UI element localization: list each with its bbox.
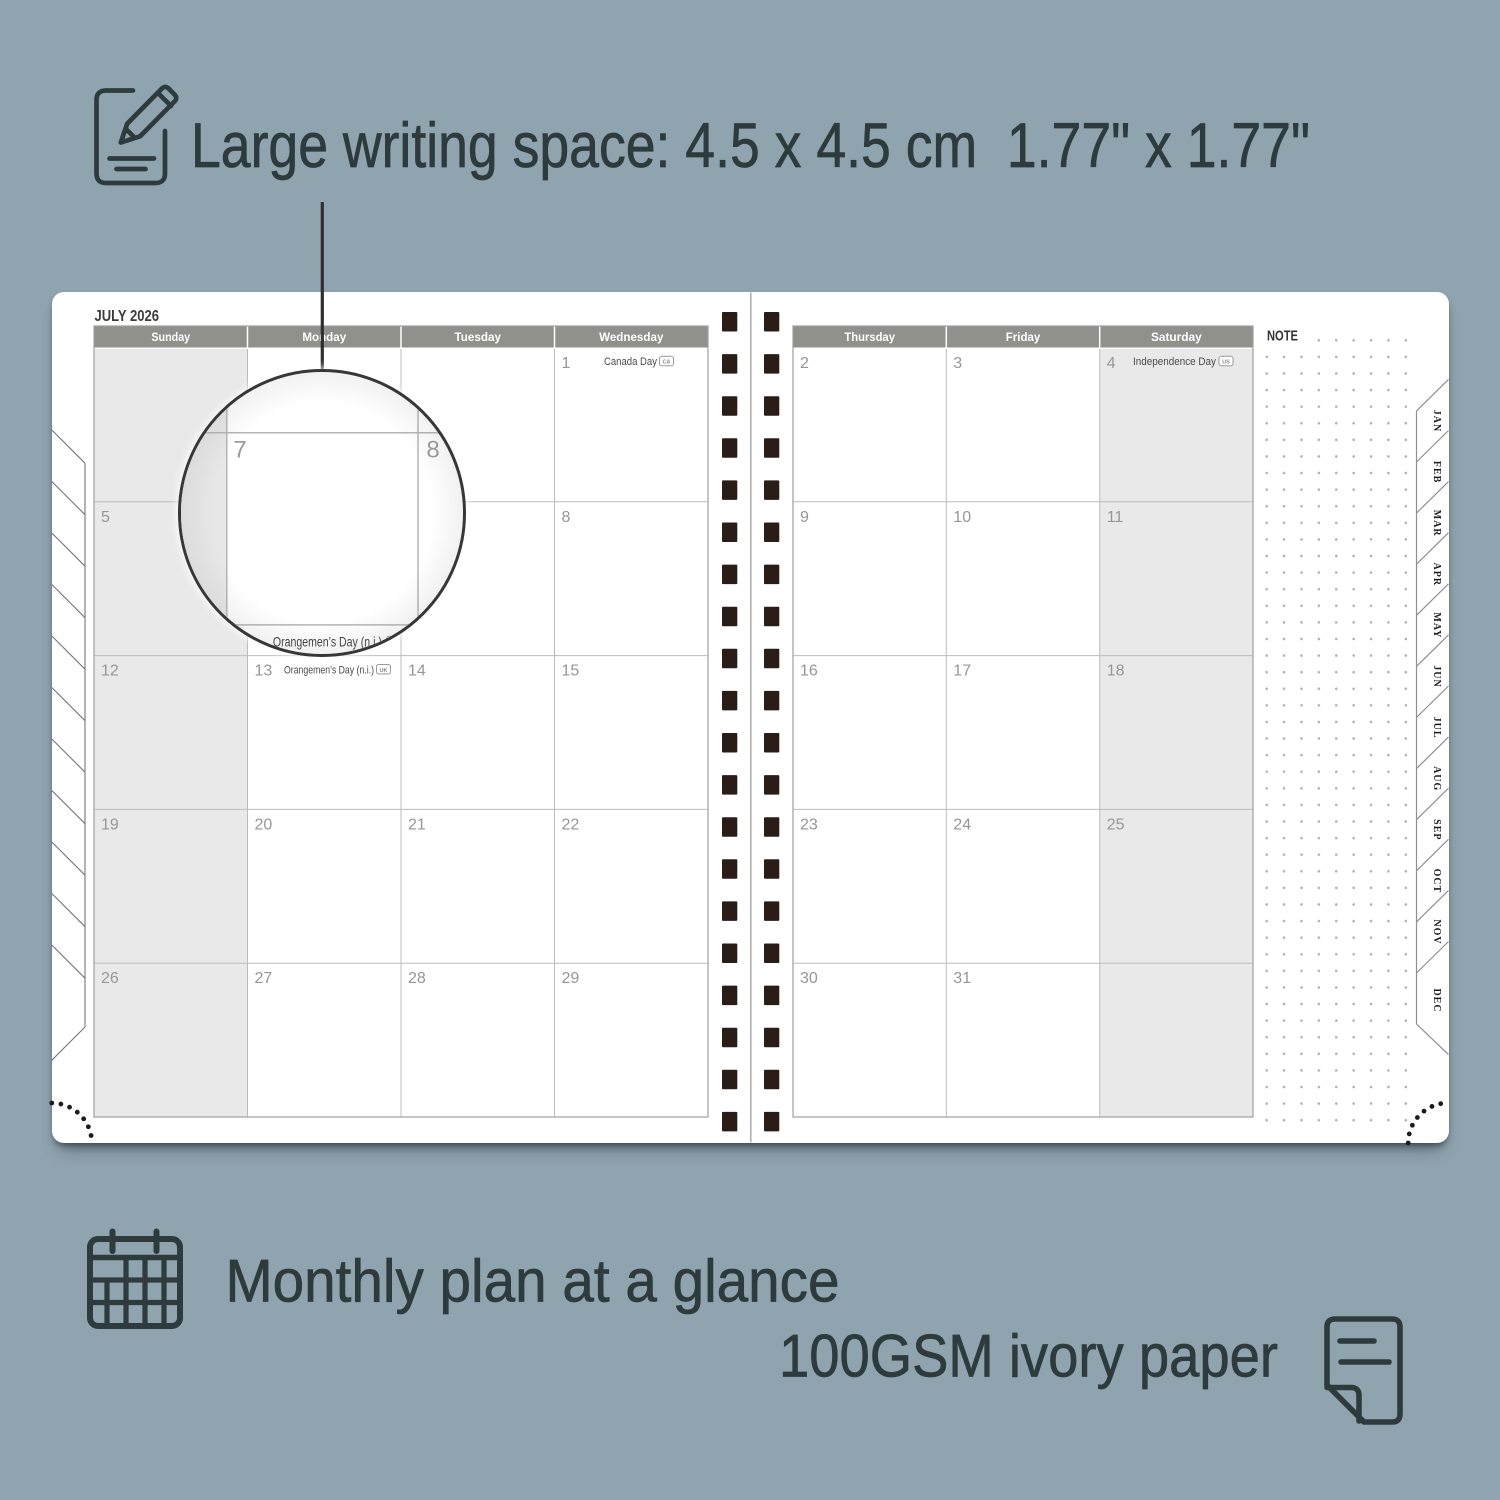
svg-text:25: 25 [1107, 816, 1125, 833]
svg-text:29: 29 [562, 970, 580, 987]
svg-text:Monday: Monday [302, 330, 346, 344]
svg-text:21: 21 [408, 816, 426, 833]
svg-text:14: 14 [408, 663, 426, 680]
svg-text:19: 19 [101, 816, 119, 833]
svg-text:11: 11 [1107, 509, 1124, 526]
svg-text:MAR: MAR [1431, 510, 1442, 537]
svg-text:OCT: OCT [1431, 869, 1442, 894]
svg-text:18: 18 [1107, 663, 1125, 680]
svg-text:SEP: SEP [1431, 819, 1442, 840]
svg-text:DEC: DEC [1431, 988, 1442, 1012]
svg-text:UK: UK [380, 668, 388, 674]
svg-text:FEB: FEB [1431, 461, 1442, 483]
svg-text:APR: APR [1431, 563, 1442, 587]
svg-text:27: 27 [255, 970, 273, 987]
svg-text:US: US [1222, 360, 1230, 366]
svg-text:JUN: JUN [1431, 665, 1442, 687]
svg-text:31: 31 [953, 970, 971, 987]
svg-text:Thursday: Thursday [844, 330, 895, 344]
svg-text:Saturday: Saturday [1151, 330, 1202, 344]
svg-text:Monthly plan at a glance: Monthly plan at a glance [226, 1248, 840, 1315]
svg-text:22: 22 [562, 816, 580, 833]
svg-text:10: 10 [953, 509, 971, 526]
svg-text:20: 20 [255, 816, 273, 833]
svg-text:NOV: NOV [1431, 919, 1442, 944]
svg-text:JAN: JAN [1431, 410, 1442, 432]
svg-text:Friday: Friday [1006, 330, 1041, 344]
svg-text:15: 15 [562, 663, 580, 680]
svg-text:4: 4 [1107, 355, 1116, 372]
svg-text:Sunday: Sunday [151, 330, 190, 344]
svg-text:3: 3 [953, 355, 962, 372]
svg-text:30: 30 [800, 970, 818, 987]
svg-text:MAY: MAY [1431, 612, 1442, 638]
svg-text:Tuesday: Tuesday [455, 330, 502, 344]
svg-text:5: 5 [101, 509, 110, 526]
svg-text:JUL: JUL [1431, 717, 1442, 739]
svg-text:100GSM ivory paper: 100GSM ivory paper [779, 1323, 1278, 1390]
svg-text:CA: CA [663, 360, 671, 366]
svg-text:Large writing space: 4.5 x 4.5: Large writing space: 4.5 x 4.5 cm 1.77" … [191, 111, 1310, 181]
svg-text:Independence Day: Independence Day [1133, 356, 1216, 368]
svg-text:8: 8 [562, 509, 571, 526]
svg-text:Canada Day: Canada Day [604, 356, 657, 368]
svg-text:13: 13 [255, 663, 273, 680]
svg-text:1: 1 [562, 355, 571, 372]
svg-text:AUG: AUG [1431, 766, 1442, 791]
svg-text:28: 28 [408, 970, 426, 987]
svg-text:2: 2 [800, 355, 809, 372]
svg-text:26: 26 [101, 970, 119, 987]
svg-text:16: 16 [800, 663, 818, 680]
svg-text:Orangemen’s Day (n.i.): Orangemen’s Day (n.i.) [284, 665, 374, 677]
svg-text:JULY 2026: JULY 2026 [95, 308, 160, 325]
svg-text:9: 9 [800, 509, 809, 526]
svg-text:NOTE: NOTE [1267, 328, 1298, 345]
svg-text:Wednesday: Wednesday [599, 330, 664, 344]
svg-text:17: 17 [953, 663, 971, 680]
svg-text:24: 24 [953, 816, 971, 833]
svg-text:12: 12 [101, 663, 119, 680]
svg-text:23: 23 [800, 816, 818, 833]
